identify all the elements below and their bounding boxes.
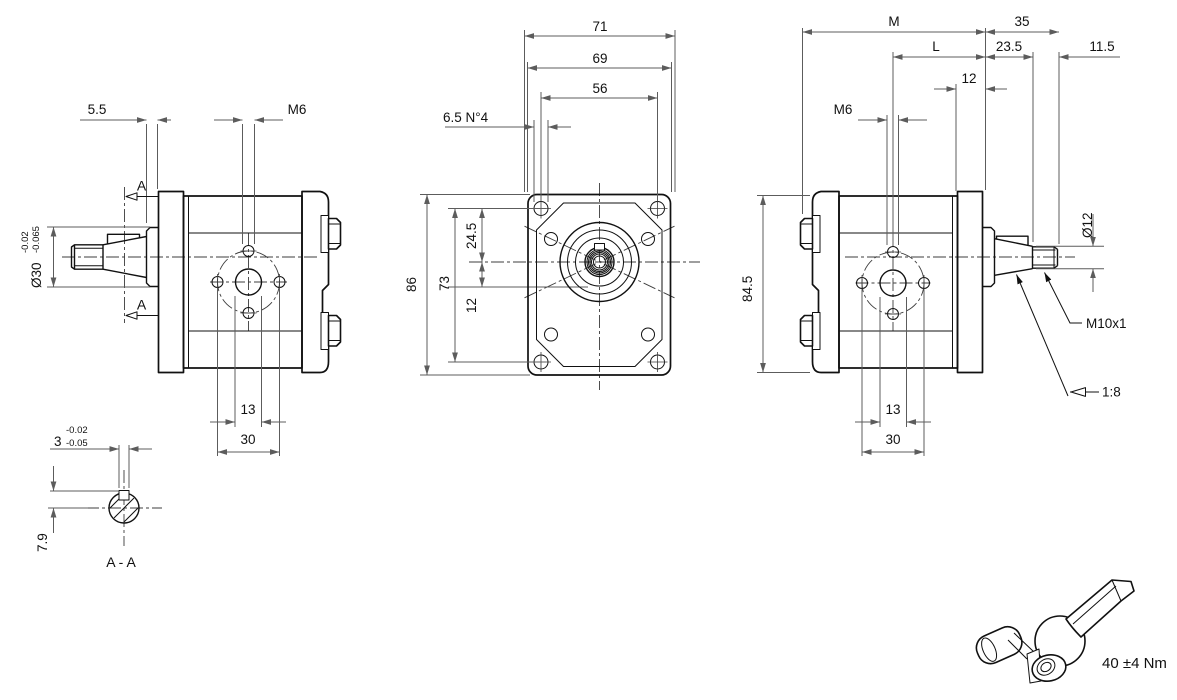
dim-23-5-label: 23.5 [996,39,1022,54]
dim-73-label: 73 [437,276,452,291]
section-a-a-view: -0.02 3 -0.05 7.9 A - A [35,425,162,570]
dim-13-label-left: 13 [240,402,255,417]
dim-30-label-left: 30 [240,432,255,447]
right-shaft [995,236,1058,275]
front-bore-keyway [595,244,605,251]
dim-12-label-right: 12 [961,71,976,86]
dim-30-tol-upper: -0.02 [20,231,31,253]
right-port-boss-bottom [801,313,821,350]
technical-drawing-page: 5.5 M6 A A Ø30 -0.02 -0.065 13 30 -0.02 … [0,0,1177,700]
taper-1-8-label: 1:8 [1102,385,1121,400]
right-leader-lines [1017,273,1100,397]
right-body-inner-lines [839,196,953,368]
dim-L-label: L [932,39,940,54]
torque-value-label: 40 ±4 Nm [1102,655,1167,672]
dim-m6-label-left: M6 [288,102,307,117]
torque-wrench-illustration: 40 ±4 Nm [972,580,1167,684]
dim-7-9-label: 7.9 [35,533,50,552]
dim-69-label: 69 [592,51,607,66]
dim-holes-note: 6.5 N°4 [443,110,489,125]
front-flange-view: 71 69 56 6.5 N°4 86 73 24.5 12 [404,19,700,390]
left-shaft [72,234,147,277]
dim-m6-label-right: M6 [834,102,853,117]
dim-71-label: 71 [592,19,607,34]
right-port-boss-top [801,216,821,253]
dim-56-label: 56 [592,81,607,96]
section-keyway [119,491,129,501]
wrench-handle [1066,580,1134,637]
right-side-view: M 35 L 23.5 11.5 12 M6 84.5 Ø12 M10x1 1:… [740,14,1127,456]
dim-30-label-right: 30 [885,432,900,447]
section-letter-top: A [137,178,147,194]
dim-shaft-dia-30: Ø30 [29,262,44,288]
dim-13-label-right: 13 [885,402,900,417]
wrench-fitting [972,623,1026,668]
key-tol-lower: -0.05 [66,438,88,449]
key-width-label: 3 [54,434,62,449]
dim-5-5-label: 5.5 [88,102,107,117]
thread-m10x1-label: M10x1 [1086,316,1127,331]
taper-symbol-icon [1071,388,1086,397]
dim-30-tol-lower: -0.065 [31,226,42,253]
left-side-view: 5.5 M6 A A Ø30 -0.02 -0.065 13 30 [20,102,341,456]
dim-35-label: 35 [1014,14,1029,29]
front-dimension-lines [420,30,675,375]
key-tol-upper: -0.02 [66,425,88,436]
dim-12-label-front: 12 [464,298,479,313]
section-a-a-label: A - A [106,554,136,570]
dim-shaft-dia-12: Ø12 [1080,212,1095,238]
dim-11-5-label: 11.5 [1089,39,1114,54]
left-flange-plate [159,192,184,373]
left-port-boss-bottom [321,313,341,350]
left-port-boss-top [321,216,341,253]
section-letter-bottom: A [137,297,147,313]
section-dimension-lines [48,445,152,533]
dim-86-label: 86 [404,277,419,292]
right-flange-plate [958,192,983,373]
pump-dimension-drawing: 5.5 M6 A A Ø30 -0.02 -0.065 13 30 -0.02 … [0,0,1177,700]
dim-84-5-label: 84.5 [740,276,755,302]
dim-24-5-label: 24.5 [464,223,479,249]
dim-M-label: M [888,14,899,29]
